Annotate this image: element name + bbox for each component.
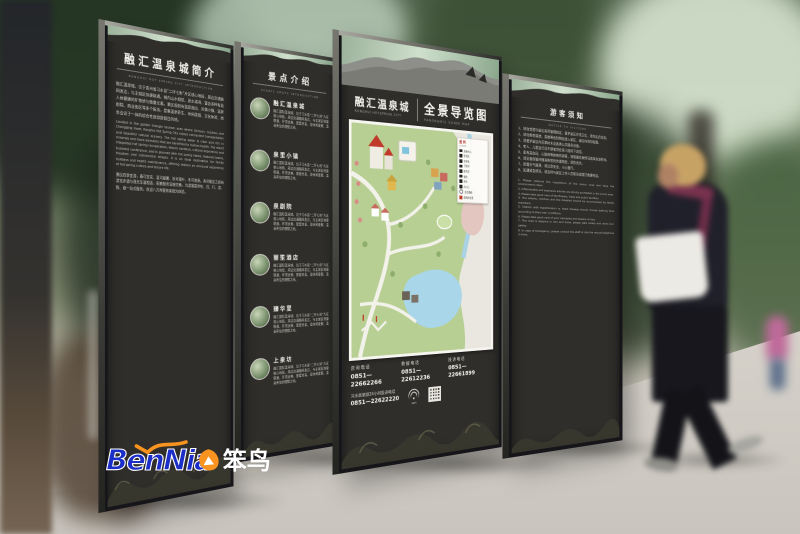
spot-description: 融汇国际温泉城，位于习水县“二环七射”片区核心地段，周边交通路网发达，与主城区快… [273, 312, 328, 335]
spot-photo-thumbnail [250, 306, 270, 329]
logo-cn-text: 笨鸟 [223, 447, 271, 475]
blurred-pole [88, 290, 98, 440]
resort-building [399, 141, 416, 162]
legend-marker-icon [459, 185, 462, 188]
list-item: 泉剧院 融汇国际温泉城，位于习水县“二环七射”片区核心地段，周边交通路网发达，与… [250, 200, 329, 248]
panel-scenic-spots: 景点介绍 SCENIC SPOTS INTRODUCTION 融汇温泉城 融汇国… [240, 42, 337, 462]
map-legend: 图例 LEGEND 游客中心 售票处 停车场 卫生间 医务室 餐饮 商店 出入口… [457, 137, 488, 204]
benniao-logo: BenNia 笨鸟 [106, 434, 274, 486]
list-item: 泉里小镇 融汇国际温泉城，位于习水县“二环七射”片区核心地段，周边交通路网发达，… [250, 148, 329, 199]
spot-photo-thumbnail [250, 96, 270, 120]
wifi-icon [407, 388, 420, 402]
legend-marker-icon [459, 174, 462, 177]
list-item: 上泉坊 融汇国际温泉城，位于习水县“二环七射”片区核心地段，周边交通路网发达，与… [250, 351, 329, 405]
legend-marker-icon [459, 159, 462, 162]
list-item: 丽笙酒店 融汇国际温泉城，位于习水县“二环七射”片区核心地段，周边交通路网发达，… [250, 253, 329, 301]
spot-description: 融汇国际温泉城，位于习水县“二环七射”片区核心地段，周边交通路网发达，与主城区快… [273, 361, 328, 386]
legend-marker-icon [459, 169, 462, 172]
hotline-block: 习水县旅游24小时投诉电话 0851—22622220 [351, 389, 399, 408]
spot-photo-thumbnail [250, 149, 270, 172]
pedestrian [636, 138, 786, 473]
left-dark-structure [0, 0, 52, 534]
list-item: 融汇温泉城 融汇国际温泉城，位于习水县“二环七射”片区核心地段，周边交通路网发达… [250, 95, 329, 150]
logo-latin-text: BenNia [106, 443, 212, 477]
notice-rules-cn: 1、请自觉遵守景区各项管理规定，爱护景区环境卫生，请勿乱扔垃圾。 2、请勿携带易… [518, 126, 614, 180]
panel-frame-edge [234, 41, 241, 463]
panel-visitor-notice-body: 游客须知 NOTICE TO VISITORS 1、请自觉遵守景区各项管理规定，… [512, 97, 620, 240]
panel-scenic-spots-body: 景点介绍 SCENIC SPOTS INTRODUCTION 融汇温泉城 融汇国… [244, 61, 335, 407]
panel-frame-edge [502, 73, 509, 459]
route-marker-icon [459, 190, 463, 195]
spot-description: 融汇国际温泉城，位于习水县“二环七射”片区核心地段，周边交通路网发达，与主城区快… [273, 160, 328, 183]
legend-marker-icon [459, 149, 462, 152]
panel-guide-map-body: 融汇温泉城 RONGHUI HOTSPRING CITY 全景导览图 PANOR… [342, 84, 499, 413]
spot-description: 融汇国际温泉城，位于习水县“二环七射”片区核心地段，周边交通路网发达，与主城区快… [273, 263, 328, 283]
pedestrian-face [658, 164, 678, 188]
header-divider [417, 99, 418, 122]
brand-block: 融汇温泉城 RONGHUI HOTSPRING CITY [355, 93, 411, 119]
intro-body-en: Located in the golden triangle tourism a… [116, 119, 224, 176]
panel-guide-map: 融汇温泉城 RONGHUI HOTSPRING CITY 全景导览图 PANOR… [338, 30, 502, 474]
legend-row: 您所在位置 [459, 196, 486, 201]
legend-marker-icon [459, 180, 462, 183]
wifi-block: WiFi [407, 386, 420, 405]
spot-photo-thumbnail [250, 357, 270, 381]
intro-body-cn2: 景区四季宜游，春可赏花、夏可避暑、秋可观叶、冬可泡泉。各功能区之间有游览步道与观… [116, 172, 224, 198]
legend-marker-icon [459, 154, 462, 157]
panel-introduction-body: 融汇温泉城简介 RONGHUI HOT SPRING CITY INTRODUC… [108, 41, 231, 198]
spot-name: 丽笙酒店 [273, 253, 328, 262]
phone-block: 投诉电话 0851—22661899 [448, 354, 492, 379]
legend-row: 游览路线 [459, 190, 486, 196]
spot-photo-thumbnail [250, 201, 270, 223]
panel-frame-edge [98, 19, 105, 513]
legend-row: 出入口 [459, 184, 486, 189]
you-are-here-icon [459, 196, 462, 199]
phone-block: 咨询电话 0851—22662266 [351, 362, 402, 389]
qr-code-icon [428, 386, 441, 402]
photo-scene: 融汇温泉城简介 RONGHUI HOT SPRING CITY INTRODUC… [0, 0, 800, 534]
legend-marker-icon [459, 164, 462, 167]
phone-block: 救援电话 0851—22612236 [401, 358, 448, 384]
panel-visitor-notice: 游客须知 NOTICE TO VISITORS 1、请自觉遵守景区各项管理规定，… [508, 74, 622, 458]
pedestrian-skirt [652, 306, 728, 402]
spot-photo-thumbnail [250, 254, 270, 276]
spot-description: 融汇国际温泉城，位于习水县“二环七射”片区核心地段，周边交通路网发达，与主城区快… [273, 212, 328, 233]
pedestrian-shoe [727, 432, 765, 457]
spot-name: 泉剧院 [273, 201, 328, 212]
notice-rules-en: 1. Please observe the regulations of the… [518, 177, 614, 239]
panel-frame-edge [332, 29, 338, 475]
tote-bag [635, 231, 710, 304]
list-item: 臻华里 融汇国际温泉城，位于习水县“二环七射”片区核心地段，周边交通路网发达，与… [250, 302, 329, 353]
map-title-block: 全景导览图 PANORAMIC GUIDE MAP [424, 99, 489, 128]
panoramic-map: 图例 LEGEND 游客中心 售票处 停车场 卫生间 医务室 餐饮 商店 出入口… [349, 119, 493, 361]
